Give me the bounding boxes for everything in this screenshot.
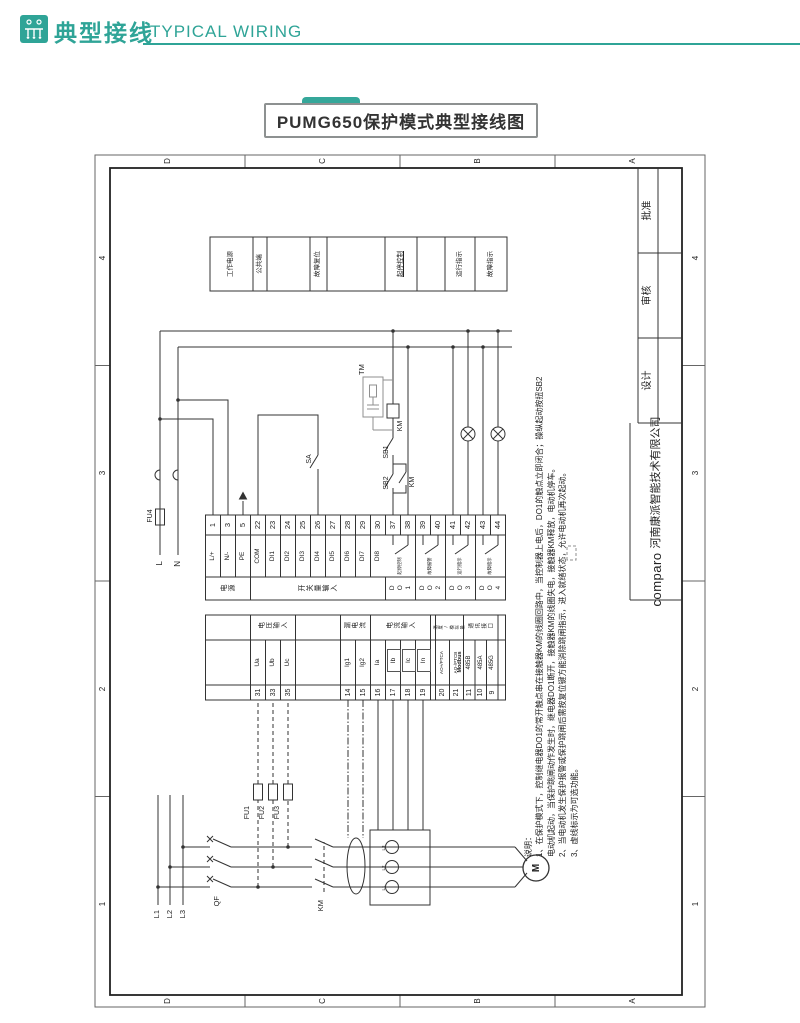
terminal-name-11: 485B: [463, 641, 475, 684]
zone-letter-left-D: D: [161, 995, 174, 1007]
terminal-name-24: DI2: [281, 536, 295, 576]
group-label-通讯接口: 通讯接口: [464, 615, 498, 640]
supply-l-label: L: [155, 561, 165, 581]
zone-letter-right-D: D: [161, 155, 174, 167]
zone-number-top-4: 4: [96, 249, 109, 267]
zone-number-top-1: 1: [96, 895, 109, 913]
terminal-name-3: N/-: [221, 536, 235, 576]
feeder-l1-label: L1: [152, 910, 162, 930]
sheet-wrap: 设计 审核 批准 comparo 河南康派智能技术有限公司 Modbus M 1…: [90, 150, 710, 1012]
terminal-name-1: L/+: [206, 536, 220, 576]
terminal-name-20: AO+/PTCA: [437, 641, 449, 684]
legend-cell-2: [267, 237, 310, 291]
terminal-name-35: Uc: [282, 641, 294, 684]
legend-cell-6: [417, 237, 445, 291]
terminal-number-25: 25: [296, 515, 310, 535]
legend-cell-4: [327, 237, 385, 291]
legend-cell-8: 故障指示: [475, 237, 507, 291]
do-contact-label-1: 起停控制: [396, 555, 404, 577]
terminal-name-19: In: [417, 649, 431, 672]
terminal-number-18: 18: [402, 685, 415, 700]
feeder-l2-label: L2: [165, 910, 175, 930]
stop-button-sb1-label: SB1: [382, 443, 391, 461]
terminal-number-40: 40: [431, 515, 445, 535]
title-block-design: 设计: [640, 338, 655, 423]
breaker-qf-label: QF: [212, 896, 222, 916]
snubber-tm-label: TM: [357, 357, 366, 375]
terminal-number-29: 29: [356, 515, 370, 535]
terminal-number-5: 5: [236, 515, 250, 535]
terminal-number-16: 16: [372, 685, 385, 700]
terminal-number-27: 27: [326, 515, 340, 535]
zone-number-bottom-2: 2: [689, 680, 702, 698]
zone-letter-right-B: B: [471, 155, 484, 167]
terminal-name-29: DI7: [356, 536, 370, 576]
terminal-name-22: COM: [251, 536, 265, 576]
zone-letter-left-C: C: [316, 995, 329, 1007]
group-label-电压输入: 电压输入: [251, 615, 296, 640]
page-title-en: TYPICAL WIRING: [150, 22, 302, 42]
terminal-name-17: Ib: [387, 649, 401, 672]
zone-number-top-2: 2: [96, 680, 109, 698]
terminal-name-9: 485G: [486, 641, 498, 684]
terminal-name-33: Ub: [267, 641, 279, 684]
terminal-number-41: 41: [446, 515, 460, 535]
drawing-sheet: 设计 审核 批准 comparo 河南康派智能技术有限公司 Modbus M 1…: [90, 150, 710, 1012]
terminal-number-17: 17: [387, 685, 400, 700]
terminal-name-15: Ig2: [357, 641, 369, 684]
group-label-开关量输入: 开关量输入: [251, 577, 386, 600]
terminal-name-10: 485A: [475, 641, 487, 684]
coil-km-label: KM: [396, 417, 405, 435]
note-line-2: 电动机起动，当保护跳闸动作发生时，继电器DO1断开，接触器KM的线圈失电，接触器…: [547, 332, 557, 857]
terminal-number-39: 39: [416, 515, 430, 535]
legend-cell-5: 起停控制: [385, 237, 417, 291]
do-contact-label-3: 运行指示: [456, 555, 464, 577]
terminal-number-3: 3: [221, 515, 235, 535]
title-block-approve: 批准: [640, 168, 655, 253]
terminal-name-28: DI6: [341, 536, 355, 576]
terminal-name-23: DI1: [266, 536, 280, 576]
terminal-name-18: Ic: [402, 649, 416, 672]
group-label-温度/模拟量: 温度/模拟量: [436, 615, 464, 640]
zone-number-bottom-3: 3: [689, 464, 702, 482]
terminal-number-15: 15: [357, 685, 370, 700]
aux-contact-km-label: KM: [408, 473, 417, 491]
terminal-number-31: 31: [252, 685, 265, 700]
zone-letter-right-A: A: [626, 155, 639, 167]
terminal-number-9: 9: [486, 685, 499, 700]
group-label-漏电流: 漏电流: [341, 615, 371, 640]
terminal-name-31: Ua: [252, 641, 264, 684]
page-title-cn: 典型接线: [54, 14, 154, 48]
terminal-name-30: DI8: [371, 536, 385, 576]
legend-cell-7: 运行指示: [445, 237, 475, 291]
terminal-number-24: 24: [281, 515, 295, 535]
note-line-1: 1、在保护模式下，控制继电器DO1的常开触点串在接触器KM的线圈回路中，当控制器…: [535, 332, 545, 857]
terminal-number-33: 33: [267, 685, 280, 700]
feeder-l3-label: L3: [178, 910, 188, 930]
zone-number-top-3: 3: [96, 464, 109, 482]
title-block-review: 审核: [640, 253, 655, 338]
terminal-number-28: 28: [341, 515, 355, 535]
legend-cell-0: 工作电源: [210, 237, 253, 291]
terminal-number-30: 30: [371, 515, 385, 535]
terminal-number-43: 43: [476, 515, 490, 535]
note-line-4: 3、虚线标示为可选功能。: [570, 332, 580, 857]
legend-cell-3: 故障复位: [310, 237, 327, 291]
terminal-number-21: 21: [450, 685, 463, 700]
zone-letter-right-C: C: [316, 155, 329, 167]
fuse-fu1-label: FU1: [243, 806, 252, 826]
fuse-fu4-label: FU4: [146, 505, 155, 527]
diagram-title: PUMG650保护模式典型接线图: [264, 103, 538, 138]
group-label-DO2: DO2: [416, 577, 446, 600]
contactor-km-label: KM: [316, 900, 326, 920]
terminal-name-14: Ig1: [342, 641, 354, 684]
terminal-number-20: 20: [436, 685, 449, 700]
note-line-3: 2、当电动机发生保护报警或保护跳闸后需按复位键方能消除跳闸指示，进入就绪状态，允…: [558, 332, 568, 857]
terminal-name-21: AO-/PTCB: [451, 641, 463, 684]
zone-number-bottom-1: 1: [689, 895, 702, 913]
zone-letter-left-B: B: [471, 995, 484, 1007]
terminal-name-5: PE: [236, 536, 250, 576]
terminal-name-25: DI3: [296, 536, 310, 576]
motor-label: M: [530, 859, 543, 877]
company-name: 河南康派智能技术有限公司: [651, 416, 662, 548]
ct-hole-l1-label: L1: [381, 881, 389, 895]
zone-letter-left-A: A: [626, 995, 639, 1007]
company-logo: comparo: [650, 552, 663, 606]
page: { "header": { "brand_cn": "典型接线", "brand…: [0, 0, 800, 1023]
start-button-sb2-label: SB2: [382, 474, 391, 492]
company-cell: comparo 河南康派智能技术有限公司: [630, 423, 682, 600]
do-contact-label-4: 故障指示: [486, 555, 494, 577]
fuse-fu2-label: FU2: [258, 806, 267, 826]
legend-cell-1: 公共端: [253, 237, 267, 291]
group-label-DO4: DO4: [476, 577, 506, 600]
group-label-DO3: DO3: [446, 577, 476, 600]
terminal-name-16: Ia: [372, 641, 384, 684]
terminal-number-22: 22: [251, 515, 265, 535]
group-label-电源: 电源: [206, 577, 251, 600]
terminal-number-19: 19: [417, 685, 430, 700]
terminal-number-26: 26: [311, 515, 325, 535]
terminal-number-38: 38: [401, 515, 415, 535]
terminal-number-14: 14: [342, 685, 355, 700]
terminal-name-26: DI4: [311, 536, 325, 576]
terminal-number-35: 35: [282, 685, 295, 700]
group-label-DO1: DO1: [386, 577, 416, 600]
ct-hole-l3-label: L3: [381, 841, 389, 855]
reset-switch-sa-label: SA: [305, 451, 314, 467]
terminal-name-27: DI5: [326, 536, 340, 576]
terminal-number-44: 44: [491, 515, 505, 535]
note-line-0: 说明：: [524, 332, 534, 857]
supply-n-label: N: [173, 561, 183, 581]
terminal-number-23: 23: [266, 515, 280, 535]
zone-number-bottom-4: 4: [689, 249, 702, 267]
fuse-fu3-label: FU3: [273, 806, 282, 826]
group-label-电流输入: 电流输入: [371, 615, 431, 640]
terminal-number-42: 42: [461, 515, 475, 535]
terminal-number-1: 1: [206, 515, 220, 535]
terminal-number-37: 37: [386, 515, 400, 535]
do-contact-label-2: 故障报警: [426, 555, 434, 577]
header-underline: [143, 43, 800, 45]
ct-hole-l2-label: L2: [381, 861, 389, 875]
brand-icon: [20, 15, 48, 43]
